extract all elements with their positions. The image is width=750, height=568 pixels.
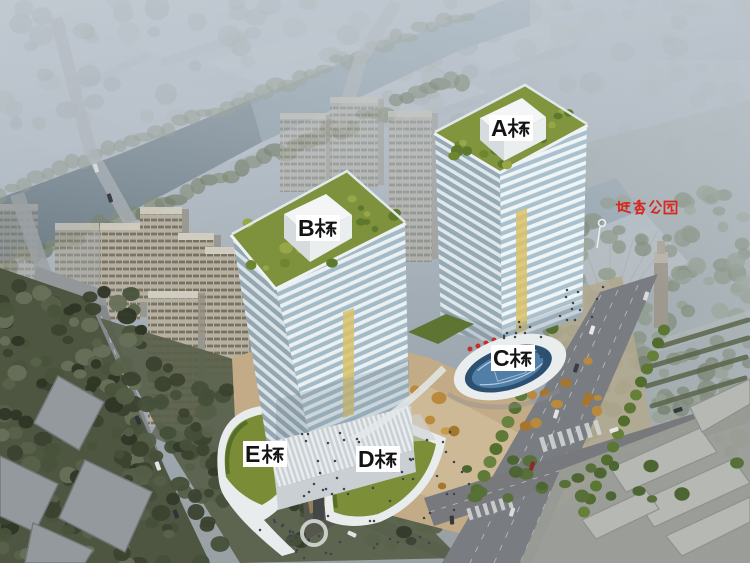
svg-text:B: B xyxy=(298,215,315,241)
svg-text:A: A xyxy=(491,115,508,141)
svg-text:C: C xyxy=(493,345,510,371)
svg-text:E: E xyxy=(245,441,260,467)
svg-text:D: D xyxy=(358,446,375,472)
